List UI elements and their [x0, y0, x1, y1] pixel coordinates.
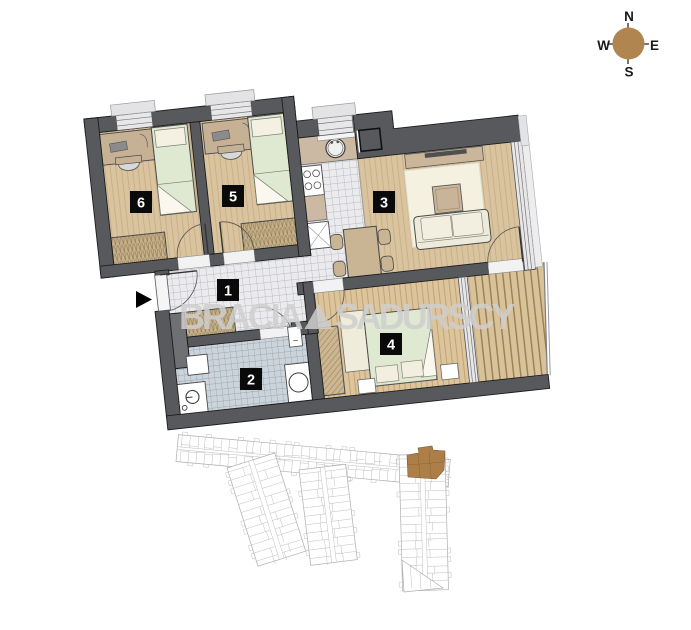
svg-text:2: 2	[247, 373, 255, 389]
svg-text:BRACIA: BRACIA	[179, 296, 303, 337]
svg-text:4: 4	[387, 338, 395, 354]
svg-text:3: 3	[380, 196, 388, 212]
svg-text:N: N	[624, 9, 634, 24]
svg-text:W: W	[597, 38, 610, 53]
svg-text:SADURSCY: SADURSCY	[335, 296, 515, 337]
svg-text:1: 1	[224, 284, 232, 300]
svg-text:E: E	[650, 38, 659, 53]
svg-text:S: S	[624, 65, 633, 80]
svg-text:5: 5	[229, 190, 237, 206]
svg-text:6: 6	[137, 196, 145, 212]
